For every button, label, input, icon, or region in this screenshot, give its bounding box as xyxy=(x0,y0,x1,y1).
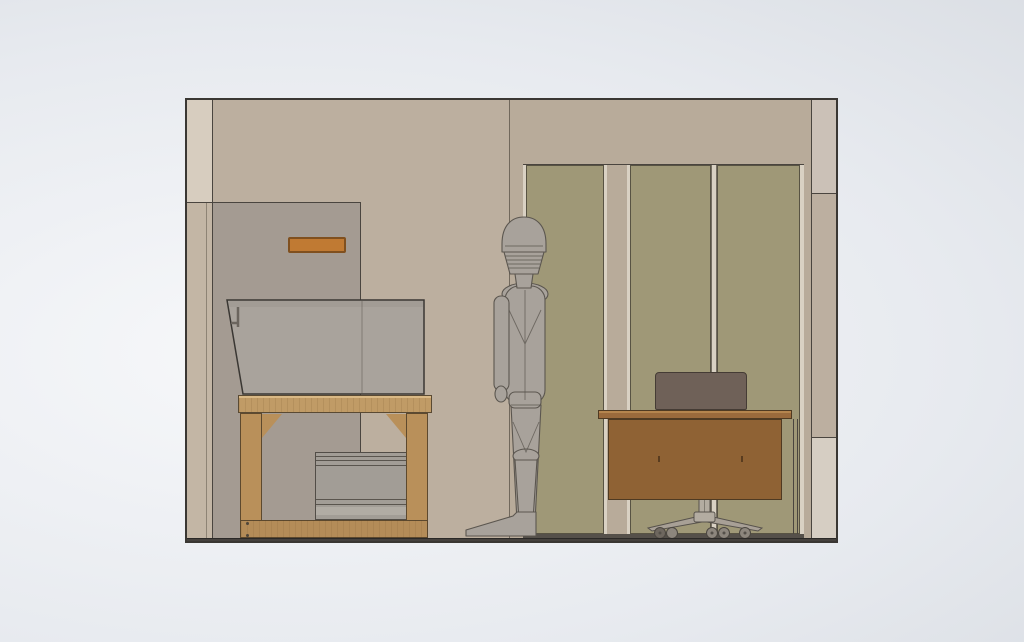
desk-side-edge xyxy=(793,419,794,534)
desk-drawer-mark xyxy=(658,456,660,462)
wall-vent xyxy=(288,237,346,253)
right-column-upper xyxy=(812,98,838,193)
mannequin-neck-band xyxy=(504,252,544,274)
chair-caster xyxy=(667,528,678,539)
left-column-upper xyxy=(185,98,212,202)
desk-drawer-mark xyxy=(741,456,743,462)
desk-top-highlight xyxy=(599,411,791,413)
left-column-lower xyxy=(185,202,212,538)
machine-rib xyxy=(316,499,412,500)
machine-rib xyxy=(316,460,412,461)
right-column-divider xyxy=(812,437,838,438)
mannequin-neck xyxy=(515,274,533,288)
right-column-divider xyxy=(812,193,838,194)
workbench-top-highlight xyxy=(239,396,431,398)
desk-box xyxy=(655,372,747,410)
desk-side-edge xyxy=(797,419,798,534)
machine-rib xyxy=(316,456,412,457)
mannequin-arm xyxy=(494,296,509,391)
under-bench-machine xyxy=(315,452,413,520)
workbench-screw xyxy=(246,522,249,525)
workbench-enclosure xyxy=(226,299,426,396)
mannequin-head xyxy=(502,217,546,252)
mannequin-shin xyxy=(515,460,537,520)
machine-rib xyxy=(316,465,412,466)
workbench-screw xyxy=(246,534,249,537)
right-column-lower xyxy=(812,437,838,538)
mannequin-foot xyxy=(466,512,536,536)
chair-hub xyxy=(694,512,715,522)
right-column-edge xyxy=(811,98,812,538)
office-chair-base xyxy=(640,496,770,541)
desk-front-panel xyxy=(608,419,782,500)
mannequin-hand xyxy=(495,386,507,402)
machine-band xyxy=(316,507,412,515)
panel-frame-strip xyxy=(800,165,804,534)
cad-viewport[interactable] xyxy=(0,0,1024,642)
machine-rib xyxy=(316,504,412,505)
room-elevation xyxy=(185,98,838,543)
left-column-divider xyxy=(185,202,213,203)
enclosure-top-shade xyxy=(229,301,423,307)
left-column-seam xyxy=(206,202,207,538)
floor-line xyxy=(185,538,838,543)
panel-frame-strip xyxy=(604,165,607,534)
mannequin-figure xyxy=(463,210,553,543)
right-column-middle xyxy=(812,193,838,437)
workbench-bottom-rail xyxy=(240,520,428,538)
